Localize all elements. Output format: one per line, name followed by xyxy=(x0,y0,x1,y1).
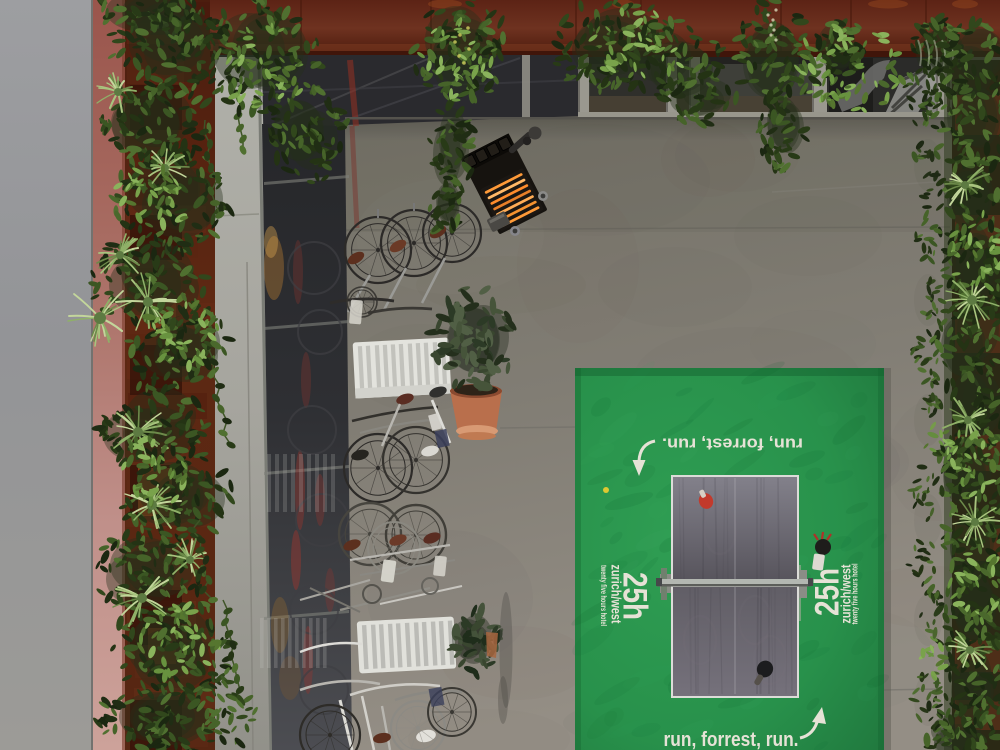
svg-text:run, forrest, run.: run, forrest, run. xyxy=(662,435,803,454)
svg-text:run, forrest, run.: run, forrest, run. xyxy=(664,729,799,750)
svg-text:twenty five hours hotel: twenty five hours hotel xyxy=(599,565,608,626)
svg-text:twenty five hours hotel: twenty five hours hotel xyxy=(851,564,860,625)
svg-text:zurich/west: zurich/west xyxy=(609,565,624,624)
